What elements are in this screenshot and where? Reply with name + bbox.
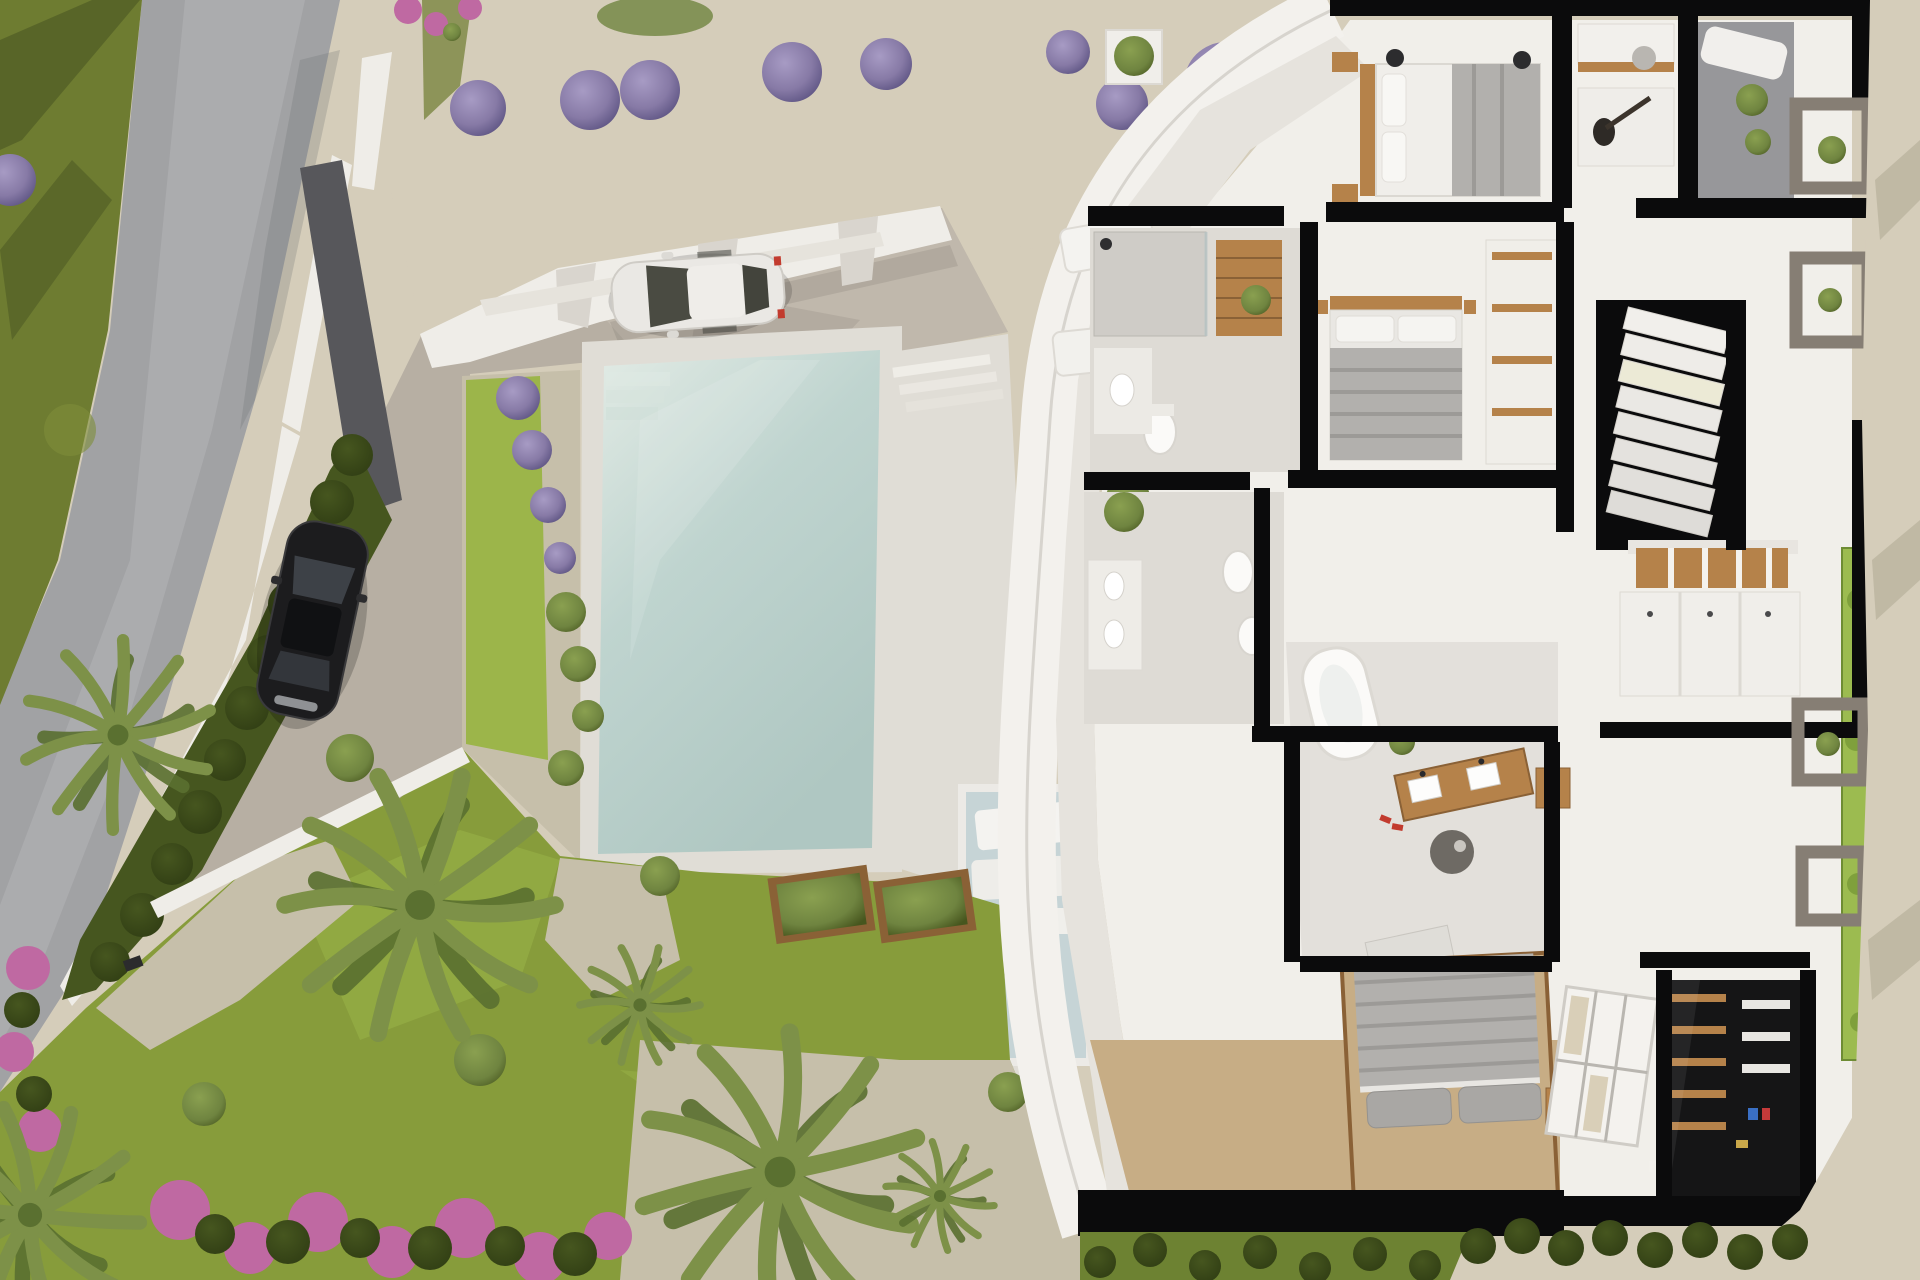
bed-blanket — [1452, 64, 1540, 196]
bedroom-top — [1332, 49, 1540, 204]
cabinets — [1620, 592, 1800, 696]
master-bedroom — [1341, 953, 1557, 1207]
pendant-lamp — [1386, 49, 1404, 67]
shrub — [572, 700, 604, 732]
rear-window — [742, 263, 769, 315]
nightstand — [1464, 300, 1476, 314]
sink — [1104, 620, 1124, 648]
plant — [1816, 732, 1840, 756]
lavender-bush — [544, 542, 576, 574]
bed-headboard — [1330, 296, 1462, 310]
pillow — [1382, 74, 1406, 126]
pillow — [1336, 316, 1394, 342]
cabinet — [1578, 88, 1674, 166]
pillow — [1382, 132, 1406, 182]
shrub — [546, 592, 586, 632]
plant — [1114, 36, 1154, 76]
lavender-bush — [496, 376, 540, 420]
villa-building: m — [1027, 0, 1920, 1280]
shrub — [548, 750, 584, 786]
closet-item — [1762, 1108, 1770, 1120]
stool — [1430, 830, 1474, 874]
shower-head — [1100, 238, 1112, 250]
pillow — [1398, 316, 1456, 342]
pillow — [1458, 1083, 1542, 1123]
shower — [1094, 232, 1206, 336]
plant — [1818, 288, 1842, 312]
plant — [1745, 129, 1771, 155]
screenshot-root: 12 — [0, 0, 1920, 1280]
shelf-niche — [1636, 548, 1788, 588]
closet-item — [1736, 1140, 1748, 1148]
bed-blanket — [1330, 348, 1462, 460]
chair — [1632, 46, 1656, 70]
pendant-lamp — [1513, 51, 1531, 69]
plant — [1736, 84, 1768, 116]
closet-item — [1748, 1108, 1758, 1120]
pillow — [1366, 1088, 1452, 1128]
bed-headboard — [1360, 64, 1376, 196]
wardrobe — [1486, 240, 1558, 464]
shrub — [560, 646, 596, 682]
nightstand — [1332, 184, 1358, 204]
plant — [1241, 285, 1271, 315]
kitchen-living — [1620, 540, 1800, 696]
framed-art-door — [1546, 987, 1658, 1146]
nightstand — [1332, 52, 1358, 72]
car-roof — [686, 263, 746, 321]
balcony-room — [1698, 22, 1794, 202]
plant — [1818, 136, 1846, 164]
lavender-bush — [530, 487, 566, 523]
toilet — [1223, 551, 1253, 593]
desk — [1578, 24, 1674, 64]
study-room — [1578, 24, 1674, 166]
sink — [1110, 374, 1134, 406]
aerial-villa-render: 12 — [0, 0, 1920, 1280]
lavender-bush — [512, 430, 552, 470]
windshield — [646, 263, 692, 328]
plant — [1104, 492, 1144, 532]
sink — [1104, 572, 1124, 600]
